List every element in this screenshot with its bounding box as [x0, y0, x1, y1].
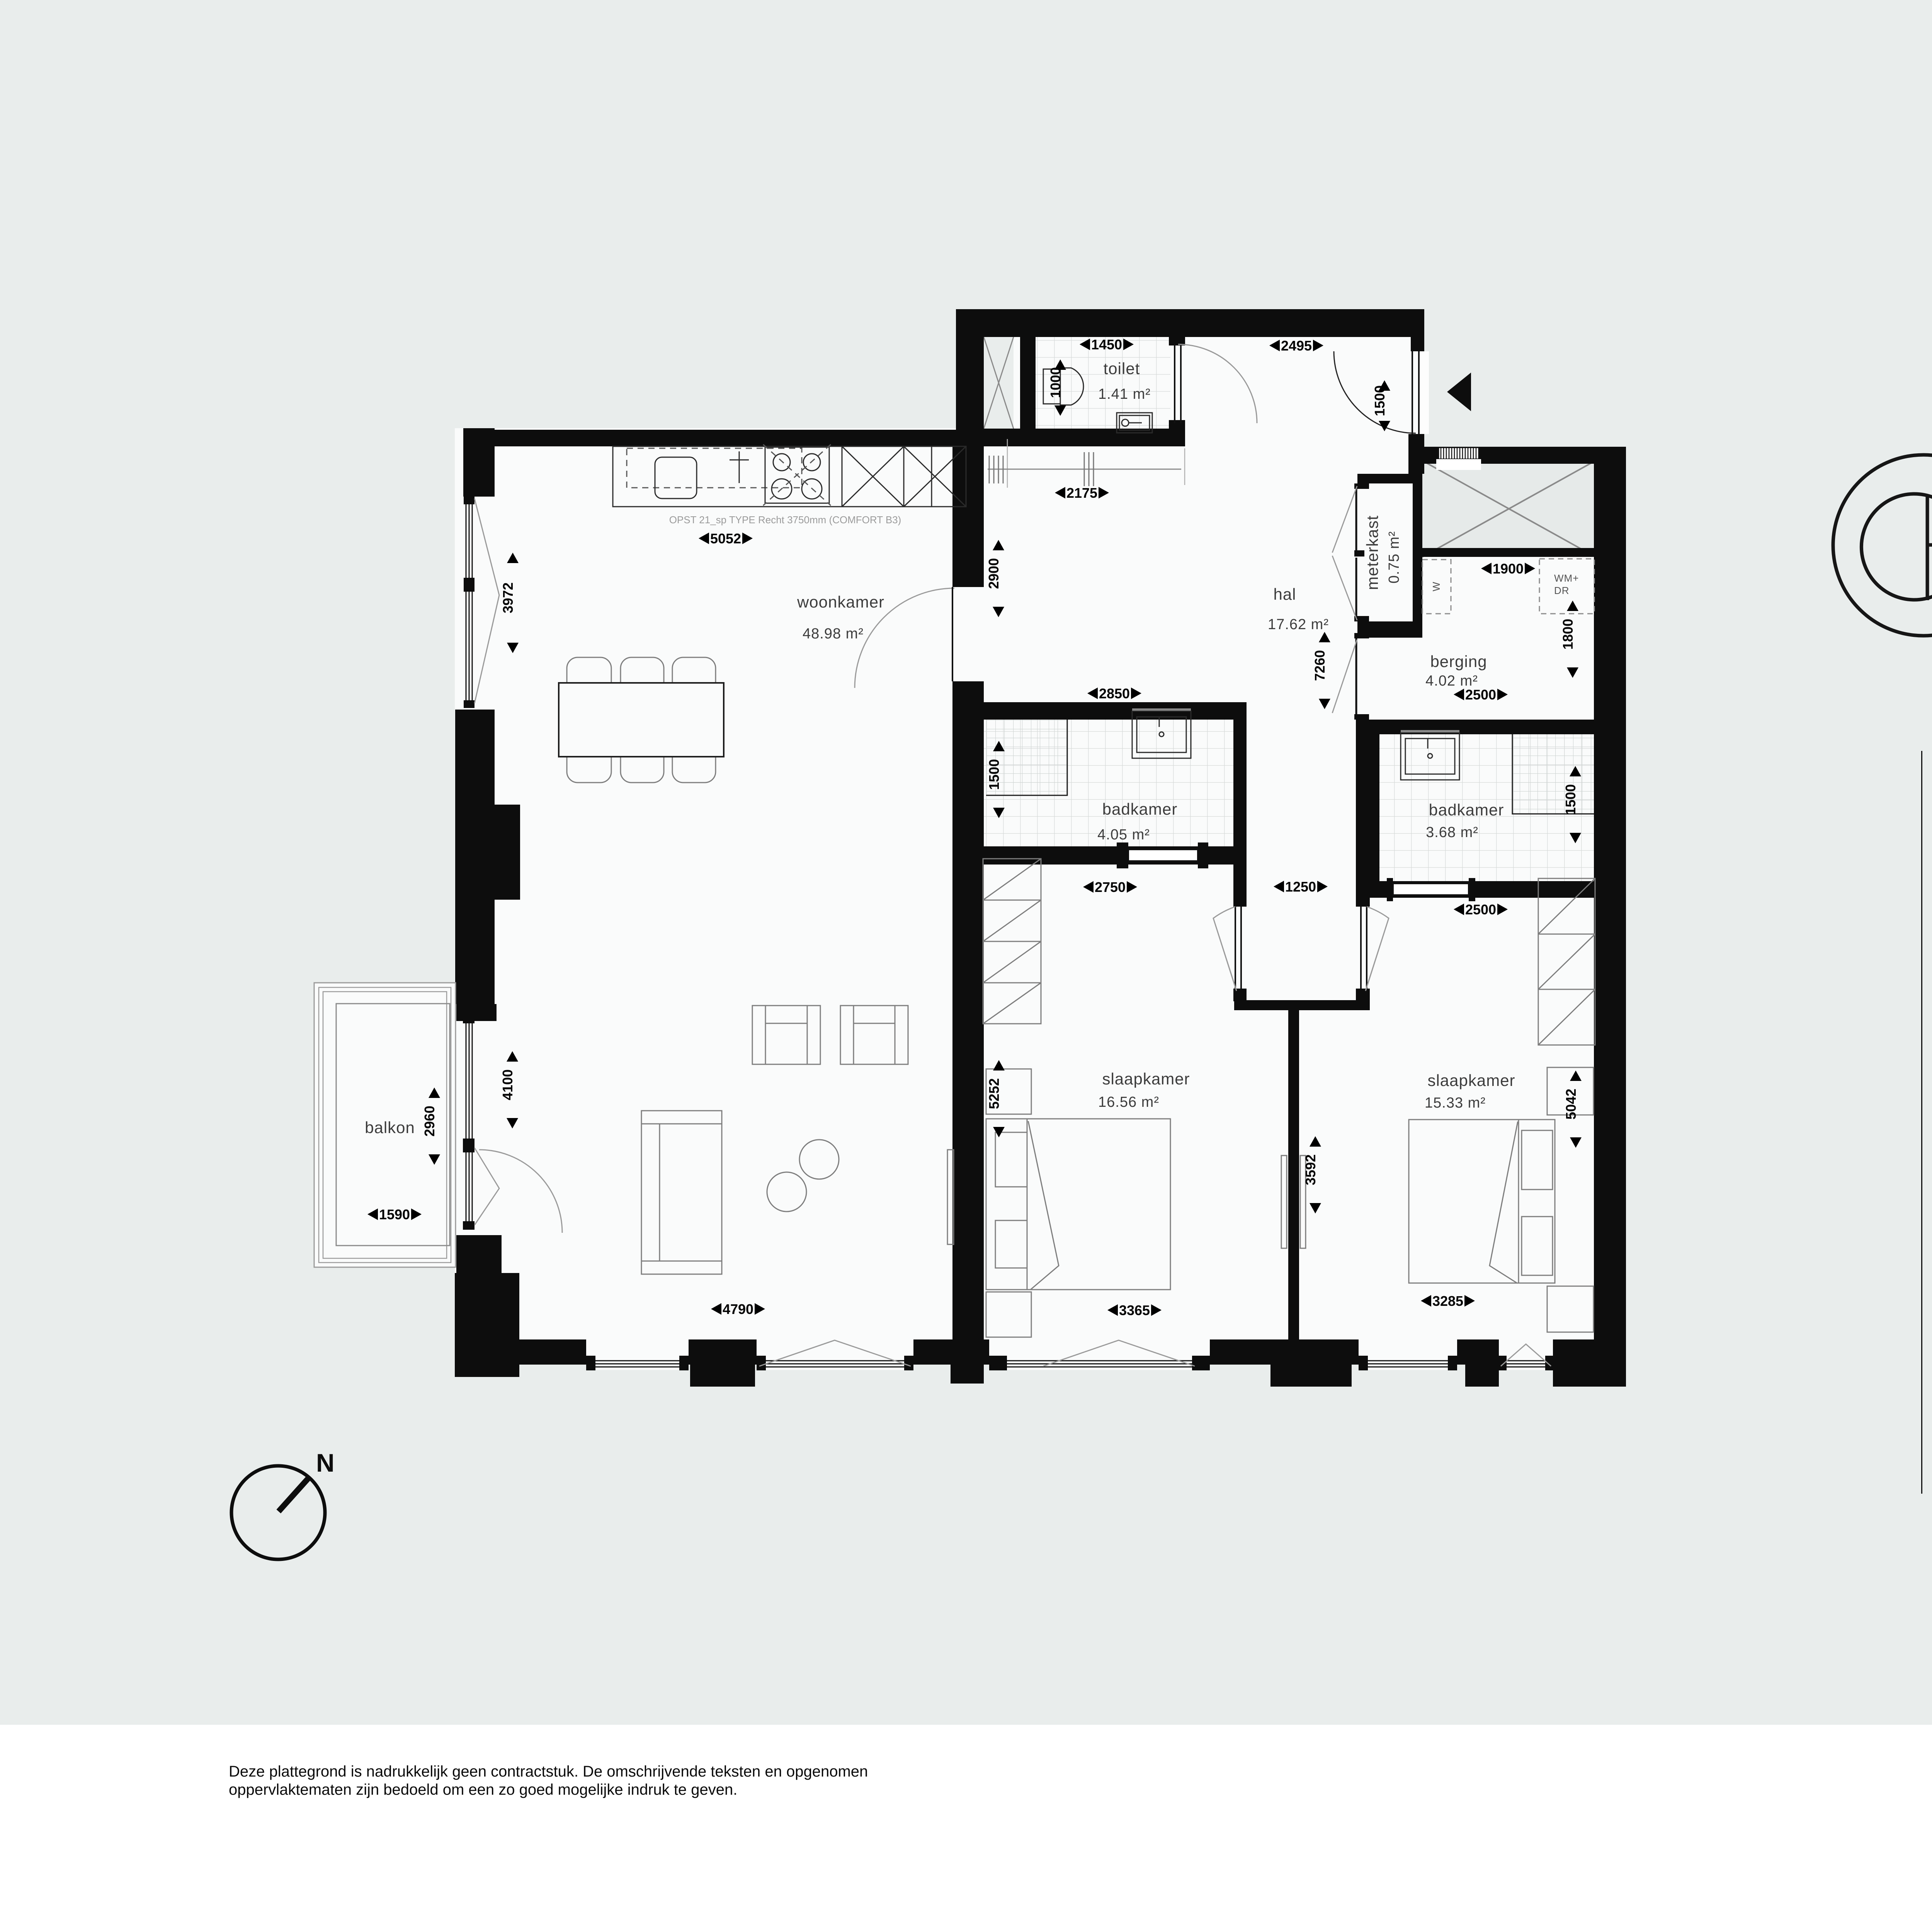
svg-text:badkamer: badkamer — [1102, 800, 1178, 818]
svg-text:1250: 1250 — [1285, 879, 1316, 895]
svg-text:badkamer: badkamer — [1429, 801, 1504, 819]
svg-text:2500: 2500 — [1465, 687, 1496, 703]
svg-text:balkon: balkon — [365, 1118, 415, 1137]
svg-text:OPST 21_sp TYPE Recht 3750mm (: OPST 21_sp TYPE Recht 3750mm (COMFORT B3… — [669, 514, 901, 526]
svg-text:3285: 3285 — [1432, 1293, 1463, 1309]
svg-text:2900: 2900 — [986, 558, 1002, 589]
svg-text:15.33 m²: 15.33 m² — [1425, 1095, 1486, 1111]
svg-text:5252: 5252 — [986, 1078, 1002, 1109]
svg-text:slaapkamer: slaapkamer — [1427, 1071, 1515, 1089]
svg-text:4100: 4100 — [500, 1069, 515, 1100]
svg-text:3972: 3972 — [500, 582, 516, 613]
svg-text:hal: hal — [1273, 585, 1296, 603]
svg-text:3.68 m²: 3.68 m² — [1426, 824, 1478, 841]
svg-text:toilet: toilet — [1104, 359, 1140, 378]
svg-text:4.05 m²: 4.05 m² — [1097, 827, 1150, 843]
svg-text:4790: 4790 — [723, 1301, 753, 1317]
svg-text:WM+: WM+ — [1554, 572, 1579, 584]
svg-text:1800: 1800 — [1560, 619, 1576, 650]
svg-text:1590: 1590 — [379, 1207, 410, 1222]
svg-text:oppervlaktematen zijn bedoeld: oppervlaktematen zijn bedoeld om een zo … — [229, 1781, 737, 1798]
svg-text:N: N — [316, 1448, 335, 1477]
svg-text:W: W — [1430, 582, 1442, 591]
svg-text:berging: berging — [1430, 652, 1487, 671]
svg-text:3592: 3592 — [1303, 1154, 1318, 1185]
svg-text:17.62 m²: 17.62 m² — [1268, 616, 1329, 633]
svg-text:2495: 2495 — [1281, 338, 1312, 354]
svg-text:2175: 2175 — [1066, 485, 1097, 501]
svg-text:1450: 1450 — [1091, 337, 1122, 352]
svg-text:5052: 5052 — [710, 531, 741, 546]
svg-text:7260: 7260 — [1312, 650, 1328, 681]
svg-text:1.41 m²: 1.41 m² — [1098, 386, 1151, 402]
svg-text:2500: 2500 — [1465, 902, 1496, 917]
svg-text:1500: 1500 — [986, 759, 1002, 790]
svg-text:1000: 1000 — [1048, 367, 1063, 398]
svg-text:16.56 m²: 16.56 m² — [1098, 1094, 1159, 1110]
svg-text:2850: 2850 — [1099, 686, 1130, 701]
svg-text:3365: 3365 — [1119, 1302, 1150, 1318]
svg-text:0.75 m²: 0.75 m² — [1386, 531, 1402, 584]
svg-text:Deze plattegrond is nadrukkeli: Deze plattegrond is nadrukkelijk geen co… — [229, 1763, 868, 1780]
svg-text:1500: 1500 — [1563, 784, 1578, 815]
svg-text:woonkamer: woonkamer — [797, 593, 884, 611]
svg-text:2960: 2960 — [422, 1106, 437, 1137]
svg-text:slaapkamer: slaapkamer — [1102, 1070, 1190, 1088]
svg-text:5042: 5042 — [1563, 1089, 1579, 1120]
svg-text:1900: 1900 — [1493, 561, 1524, 577]
svg-text:meterkast: meterkast — [1363, 515, 1381, 590]
svg-text:48.98 m²: 48.98 m² — [803, 626, 864, 642]
svg-text:2750: 2750 — [1095, 879, 1126, 895]
svg-text:DR: DR — [1554, 585, 1570, 596]
